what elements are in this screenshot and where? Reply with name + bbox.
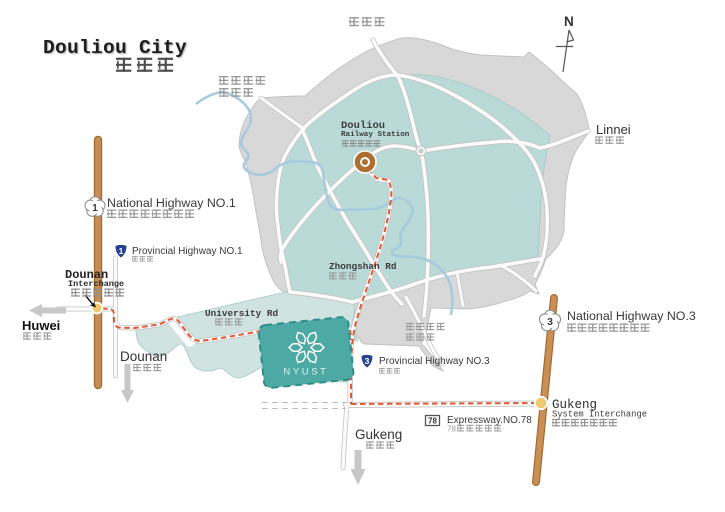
svg-text:Provincial Highway NO.1: Provincial Highway NO.1: [132, 246, 243, 257]
svg-text:3: 3: [365, 356, 370, 366]
svg-text:78: 78: [447, 425, 456, 434]
svg-text:Interchange: Interchange: [68, 279, 124, 289]
svg-text:University Rd: University Rd: [205, 308, 278, 319]
svg-text:Linnei: Linnei: [596, 122, 631, 137]
svg-text:Huwei: Huwei: [22, 318, 60, 333]
svg-text:Douliou City: Douliou City: [43, 37, 187, 59]
svg-text:Railway Station: Railway Station: [341, 131, 410, 139]
svg-text:System Interchange: System Interchange: [552, 410, 647, 420]
svg-text:N: N: [564, 14, 574, 29]
svg-text:National Highway NO.1: National Highway NO.1: [107, 196, 236, 210]
svg-text:1: 1: [119, 246, 124, 256]
svg-text:78: 78: [428, 417, 437, 426]
svg-text:Expressway.NO.78: Expressway.NO.78: [447, 415, 532, 426]
svg-text:NYUST: NYUST: [283, 367, 328, 378]
svg-text:Gukeng: Gukeng: [355, 427, 402, 442]
svg-text:Zhongshan Rd: Zhongshan Rd: [329, 261, 397, 272]
svg-text:National Highway NO.3: National Highway NO.3: [567, 309, 696, 323]
svg-text:Dounan: Dounan: [120, 349, 167, 364]
svg-text:Provincial Highway NO.3: Provincial Highway NO.3: [379, 356, 490, 367]
svg-text:3: 3: [547, 316, 553, 328]
svg-text:1: 1: [92, 203, 98, 214]
